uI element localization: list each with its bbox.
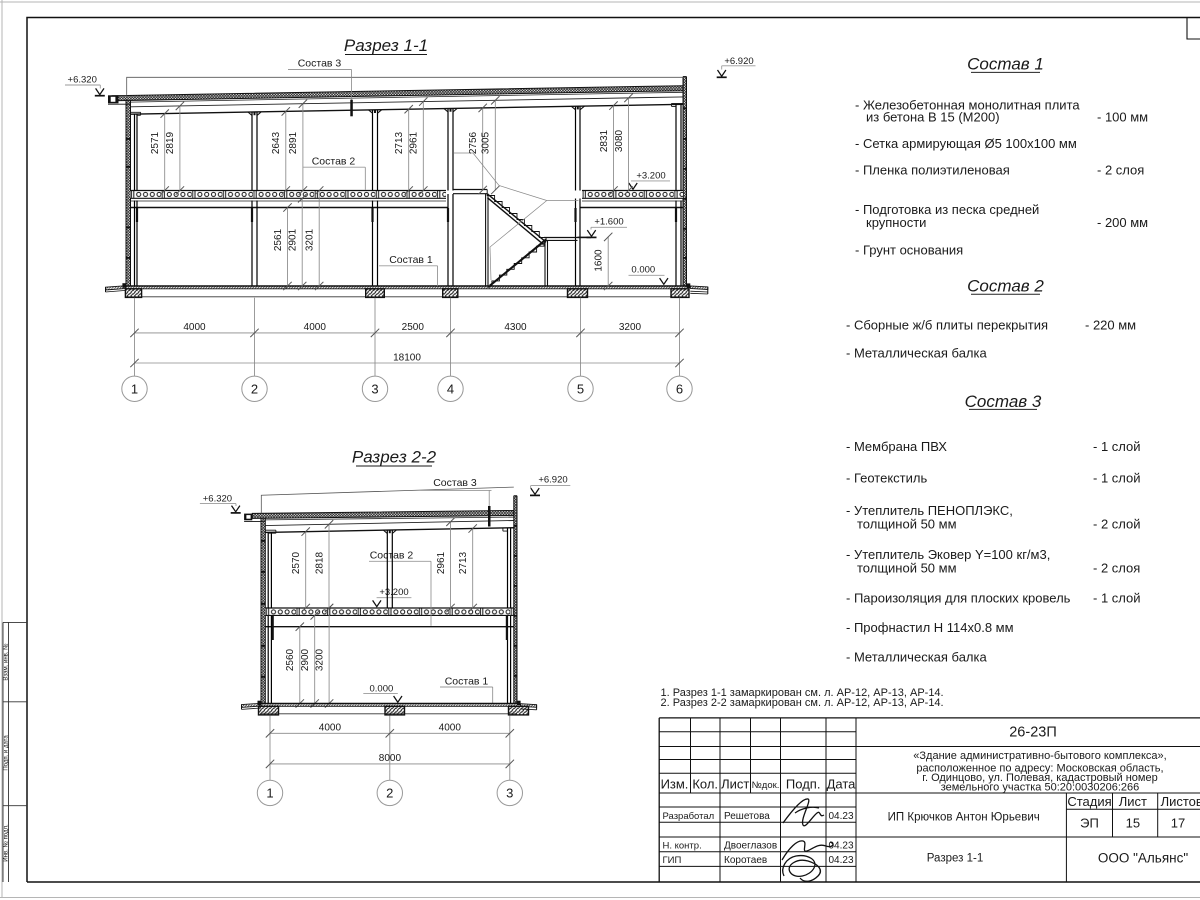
svg-text:Разработал: Разработал [663, 811, 715, 822]
svg-text:- Металлическая балка: - Металлическая балка [846, 345, 987, 360]
svg-text:Изм.: Изм. [661, 777, 689, 792]
svg-text:- 100 мм: - 100 мм [1097, 110, 1148, 125]
svg-text:Листов: Листов [1161, 794, 1200, 809]
svg-text:3005: 3005 [481, 131, 492, 154]
svg-text:17: 17 [1171, 816, 1185, 831]
svg-text:2831: 2831 [599, 129, 610, 152]
svg-text:3201: 3201 [305, 228, 316, 251]
svg-text:4000: 4000 [319, 723, 342, 734]
svg-text:2: 2 [386, 786, 393, 801]
svg-text:- Сборные ж/б плиты перекрытия: - Сборные ж/б плиты перекрытия [846, 317, 1048, 332]
svg-text:ООО "Альянс": ООО "Альянс" [1098, 851, 1188, 866]
svg-text:2756: 2756 [468, 131, 479, 154]
svg-text:2900: 2900 [300, 648, 311, 671]
svg-text:Стадия: Стадия [1067, 794, 1111, 809]
svg-text:2561: 2561 [273, 228, 284, 251]
svg-text:2901: 2901 [288, 228, 299, 251]
svg-text:Подп.: Подп. [786, 777, 821, 792]
svg-text:5: 5 [577, 381, 584, 396]
svg-text:1: 1 [266, 786, 273, 801]
svg-text:Взам. инв. №: Взам. инв. № [2, 643, 9, 680]
svg-text:+6.320: +6.320 [203, 493, 232, 504]
svg-text:из бетона В 15 (М200): из бетона В 15 (М200) [866, 110, 1000, 125]
svg-text:Лист: Лист [1119, 794, 1147, 809]
svg-text:2571: 2571 [150, 131, 161, 154]
svg-text:2: 2 [251, 381, 258, 396]
svg-text:2891: 2891 [288, 131, 299, 154]
svg-text:2818: 2818 [314, 551, 325, 574]
svg-text:- Грунт основания: - Грунт основания [855, 243, 963, 258]
svg-text:4000: 4000 [183, 322, 206, 333]
svg-text:Состав 2: Состав 2 [370, 550, 414, 562]
svg-text:- 1 слой: - 1 слой [1093, 471, 1141, 486]
svg-text:15: 15 [1126, 816, 1140, 831]
svg-text:0.000: 0.000 [631, 264, 655, 275]
svg-text:04.23: 04.23 [828, 855, 853, 866]
svg-text:толщиной 50 мм: толщиной 50 мм [857, 561, 957, 576]
svg-text:Дата: Дата [827, 777, 857, 792]
svg-text:- Профнастил Н 114х0.8 мм: - Профнастил Н 114х0.8 мм [846, 620, 1014, 635]
svg-text:Коротаев: Коротаев [724, 855, 767, 866]
svg-text:ЭП: ЭП [1080, 816, 1099, 831]
svg-text:Состав 3: Состав 3 [965, 392, 1042, 411]
svg-text:Двоеглазов: Двоеглазов [724, 840, 777, 851]
svg-text:Лист: Лист [721, 777, 749, 792]
svg-text:8000: 8000 [379, 753, 402, 764]
svg-text:2500: 2500 [402, 322, 425, 333]
svg-text:2643: 2643 [271, 131, 282, 154]
svg-text:- 2 слой: - 2 слой [1093, 517, 1141, 532]
svg-text:2819: 2819 [165, 131, 176, 154]
svg-text:- Сетка армирующая Ø5 100х100: - Сетка армирующая Ø5 100х100 мм [855, 136, 1077, 151]
svg-text:6: 6 [676, 381, 683, 396]
svg-text:4000: 4000 [439, 723, 462, 734]
svg-text:Состав 2: Состав 2 [967, 277, 1044, 296]
svg-text:2713: 2713 [458, 551, 469, 574]
svg-text:04.23: 04.23 [828, 811, 853, 822]
svg-text:Разрез 1-1: Разрез 1-1 [344, 36, 428, 55]
svg-text:0.000: 0.000 [370, 684, 394, 695]
svg-text:2713: 2713 [394, 131, 405, 154]
svg-text:2. Разрез 2-2 замаркирован см.: 2. Разрез 2-2 замаркирован см. л. АР-12,… [661, 697, 944, 709]
svg-text:+1.600: +1.600 [594, 217, 623, 228]
svg-text:3: 3 [506, 786, 513, 801]
svg-text:ИП Крючков Антон Юрьевич: ИП Крючков Антон Юрьевич [888, 812, 1040, 824]
svg-text:Н. контр.: Н. контр. [663, 840, 702, 851]
svg-text:Состав 1: Состав 1 [445, 676, 489, 688]
svg-text:Решетова: Решетова [724, 811, 770, 822]
svg-text:4300: 4300 [504, 322, 527, 333]
svg-text:Инв. № подл.: Инв. № подл. [2, 824, 9, 862]
svg-text:Состав 1: Состав 1 [967, 54, 1044, 73]
svg-text:- 200 мм: - 200 мм [1097, 215, 1148, 230]
svg-text:Состав 1: Состав 1 [389, 254, 433, 266]
svg-text:4: 4 [447, 381, 454, 396]
svg-text:2570: 2570 [291, 551, 302, 574]
svg-text:«Здание административно-бытово: «Здание административно-бытового комплек… [913, 750, 1166, 762]
svg-text:- Пароизоляция для плоских кро: - Пароизоляция для плоских кровель [846, 591, 1071, 606]
svg-text:1: 1 [131, 381, 138, 396]
svg-text:земельного участка 50:20:00302: земельного участка 50:20:0030206:266 [941, 782, 1140, 794]
svg-text:3200: 3200 [619, 322, 642, 333]
svg-text:№док.: №док. [752, 780, 780, 791]
svg-text:1600: 1600 [594, 249, 605, 272]
svg-text:- 2 слоя: - 2 слоя [1097, 163, 1144, 178]
svg-text:18100: 18100 [393, 352, 421, 363]
svg-text:Кол.: Кол. [692, 777, 718, 792]
svg-text:3200: 3200 [314, 648, 325, 671]
svg-text:3: 3 [371, 381, 378, 396]
svg-text:Состав 3: Состав 3 [433, 477, 477, 489]
svg-text:- 1 слой: - 1 слой [1093, 591, 1141, 606]
svg-text:4000: 4000 [304, 322, 327, 333]
svg-text:Разрез 2-2: Разрез 2-2 [352, 448, 437, 467]
svg-text:Разрез 1-1: Разрез 1-1 [927, 853, 983, 865]
svg-text:2961: 2961 [436, 551, 447, 574]
svg-text:2560: 2560 [285, 648, 296, 671]
svg-text:Подп. и дата: Подп. и дата [3, 735, 9, 771]
svg-text:Состав 3: Состав 3 [298, 58, 342, 70]
svg-text:- Мембрана ПВХ: - Мембрана ПВХ [846, 439, 947, 454]
svg-text:толщиной 50 мм: толщиной 50 мм [857, 517, 957, 532]
svg-text:2961: 2961 [409, 131, 420, 154]
svg-text:26-23П: 26-23П [1009, 725, 1057, 741]
svg-text:+6.920: +6.920 [724, 56, 753, 67]
svg-text:- Металлическая балка: - Металлическая балка [846, 650, 987, 665]
svg-text:- Пленка полиэтиленовая: - Пленка полиэтиленовая [855, 163, 1010, 178]
svg-text:+3.200: +3.200 [379, 587, 408, 598]
svg-text:- 2 слоя: - 2 слоя [1093, 561, 1140, 576]
svg-text:+6.920: +6.920 [538, 475, 567, 486]
svg-text:- 220 мм: - 220 мм [1085, 317, 1136, 332]
svg-text:ГИП: ГИП [663, 855, 682, 866]
svg-text:Состав 2: Состав 2 [312, 156, 356, 168]
svg-text:+3.200: +3.200 [636, 171, 665, 182]
svg-text:3080: 3080 [614, 129, 625, 152]
svg-text:крупности: крупности [866, 215, 926, 230]
svg-text:- Геотекстиль: - Геотекстиль [846, 471, 927, 486]
svg-text:+6.320: +6.320 [68, 74, 97, 85]
svg-text:- 1 слой: - 1 слой [1093, 439, 1141, 454]
